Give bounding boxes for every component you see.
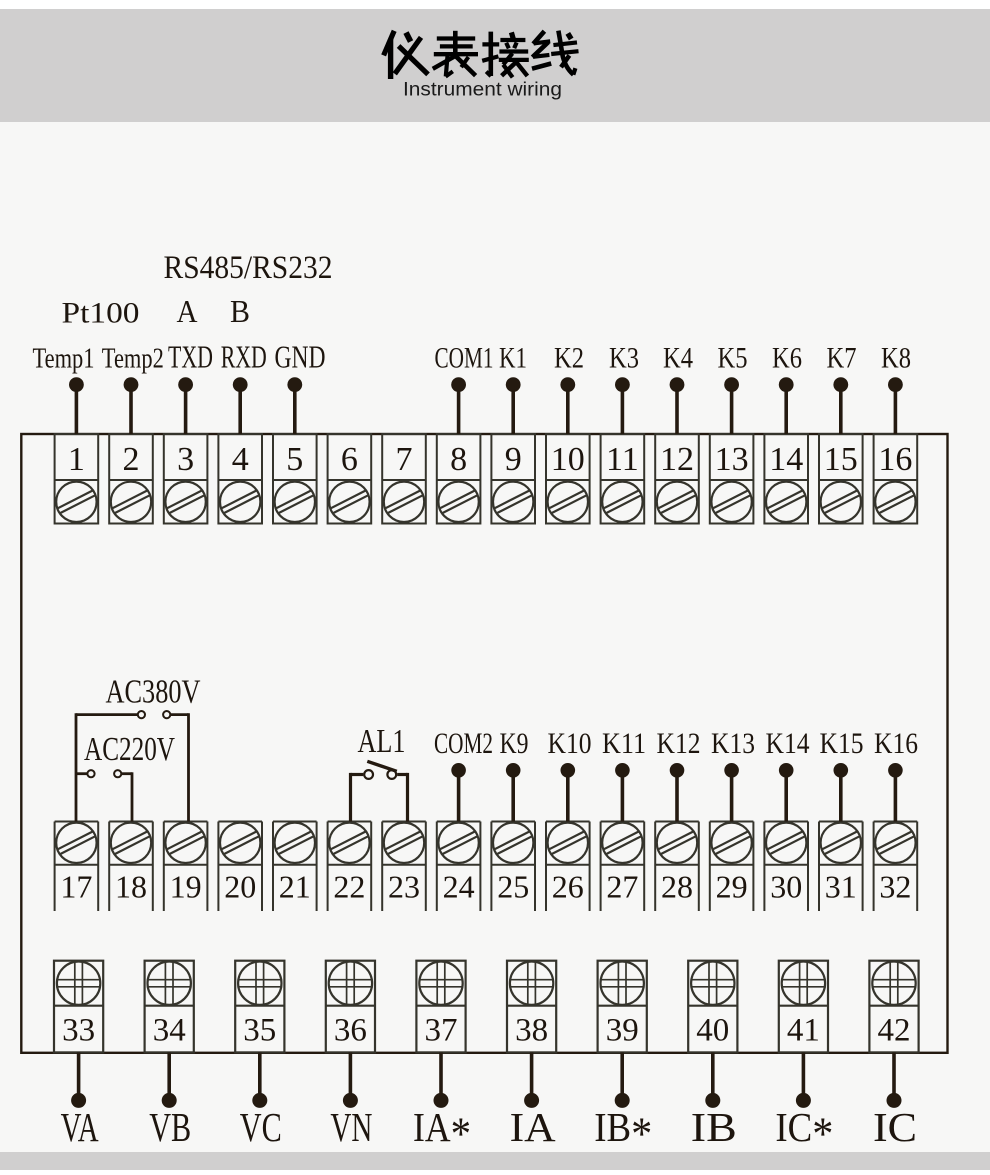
svg-text:40: 40 (696, 1012, 729, 1048)
svg-text:26: 26 (552, 869, 584, 905)
svg-text:16: 16 (878, 441, 912, 478)
svg-text:23: 23 (388, 869, 420, 905)
svg-text:Pt100: Pt100 (62, 297, 140, 330)
svg-text:33: 33 (62, 1012, 95, 1048)
svg-text:36: 36 (334, 1012, 367, 1048)
svg-text:18: 18 (115, 869, 147, 905)
svg-text:K14: K14 (766, 727, 810, 760)
svg-text:K5: K5 (718, 342, 748, 375)
svg-text:22: 22 (333, 869, 365, 905)
svg-text:K9: K9 (500, 727, 529, 760)
svg-text:K15: K15 (820, 727, 864, 760)
svg-text:21: 21 (279, 869, 311, 905)
svg-text:32: 32 (879, 869, 911, 905)
svg-text:7: 7 (396, 441, 413, 478)
svg-text:RXD: RXD (221, 339, 267, 375)
svg-text:RS485/RS232: RS485/RS232 (164, 250, 333, 286)
svg-text:28: 28 (661, 869, 693, 905)
svg-text:A: A (177, 293, 198, 329)
svg-text:15: 15 (824, 441, 858, 478)
svg-text:2: 2 (123, 441, 140, 478)
svg-text:K16: K16 (874, 727, 918, 760)
svg-text:COM2: COM2 (434, 727, 493, 760)
svg-text:IA: IA (510, 1104, 556, 1150)
svg-text:9: 9 (505, 441, 522, 478)
svg-text:37: 37 (425, 1012, 458, 1048)
svg-text:14: 14 (769, 441, 803, 478)
svg-text:Temp2: Temp2 (102, 343, 164, 375)
svg-text:30: 30 (770, 869, 802, 905)
svg-text:VC: VC (240, 1104, 282, 1150)
svg-text:K3: K3 (609, 342, 639, 375)
svg-text:AL1: AL1 (358, 723, 406, 760)
svg-text:COM1: COM1 (435, 342, 494, 375)
svg-text:VB: VB (149, 1104, 191, 1150)
svg-text:IC: IC (873, 1104, 917, 1150)
svg-text:1: 1 (68, 441, 85, 478)
svg-text:5: 5 (286, 441, 303, 478)
svg-text:29: 29 (716, 869, 748, 905)
svg-text:10: 10 (551, 441, 585, 478)
svg-text:AC380V: AC380V (106, 674, 201, 711)
svg-text:K12: K12 (657, 727, 701, 760)
svg-text:35: 35 (243, 1012, 276, 1048)
svg-text:Instrument wiring: Instrument wiring (403, 79, 562, 100)
svg-text:12: 12 (660, 441, 694, 478)
svg-text:K10: K10 (548, 727, 592, 760)
svg-text:AC220V: AC220V (84, 731, 175, 768)
svg-text:K6: K6 (772, 342, 802, 375)
svg-text:25: 25 (497, 869, 529, 905)
svg-text:4: 4 (232, 441, 249, 478)
svg-text:3: 3 (177, 441, 194, 478)
svg-text:K1: K1 (499, 342, 527, 375)
svg-text:IB: IB (691, 1104, 737, 1150)
svg-text:K8: K8 (881, 342, 911, 375)
svg-text:TXD: TXD (168, 339, 213, 375)
svg-text:19: 19 (170, 869, 202, 905)
svg-text:Temp1: Temp1 (33, 343, 95, 375)
svg-text:K2: K2 (554, 342, 584, 375)
svg-text:6: 6 (341, 441, 358, 478)
svg-text:VN: VN (330, 1104, 372, 1150)
svg-text:11: 11 (606, 441, 639, 478)
svg-text:VA: VA (61, 1104, 99, 1150)
svg-text:8: 8 (450, 441, 467, 478)
svg-text:13: 13 (715, 441, 749, 478)
svg-text:17: 17 (60, 869, 92, 905)
svg-text:K11: K11 (602, 727, 646, 760)
svg-text:34: 34 (153, 1012, 186, 1048)
svg-text:31: 31 (825, 869, 857, 905)
svg-text:24: 24 (443, 869, 475, 905)
svg-text:27: 27 (606, 869, 638, 905)
svg-text:20: 20 (224, 869, 256, 905)
svg-text:K4: K4 (663, 342, 693, 375)
svg-text:GND: GND (275, 339, 326, 375)
svg-text:42: 42 (878, 1012, 911, 1048)
svg-text:41: 41 (787, 1012, 820, 1048)
svg-text:K7: K7 (827, 342, 857, 375)
svg-text:38: 38 (515, 1012, 548, 1048)
svg-text:K13: K13 (711, 727, 755, 760)
svg-text:B: B (230, 293, 250, 329)
svg-text:39: 39 (606, 1012, 639, 1048)
